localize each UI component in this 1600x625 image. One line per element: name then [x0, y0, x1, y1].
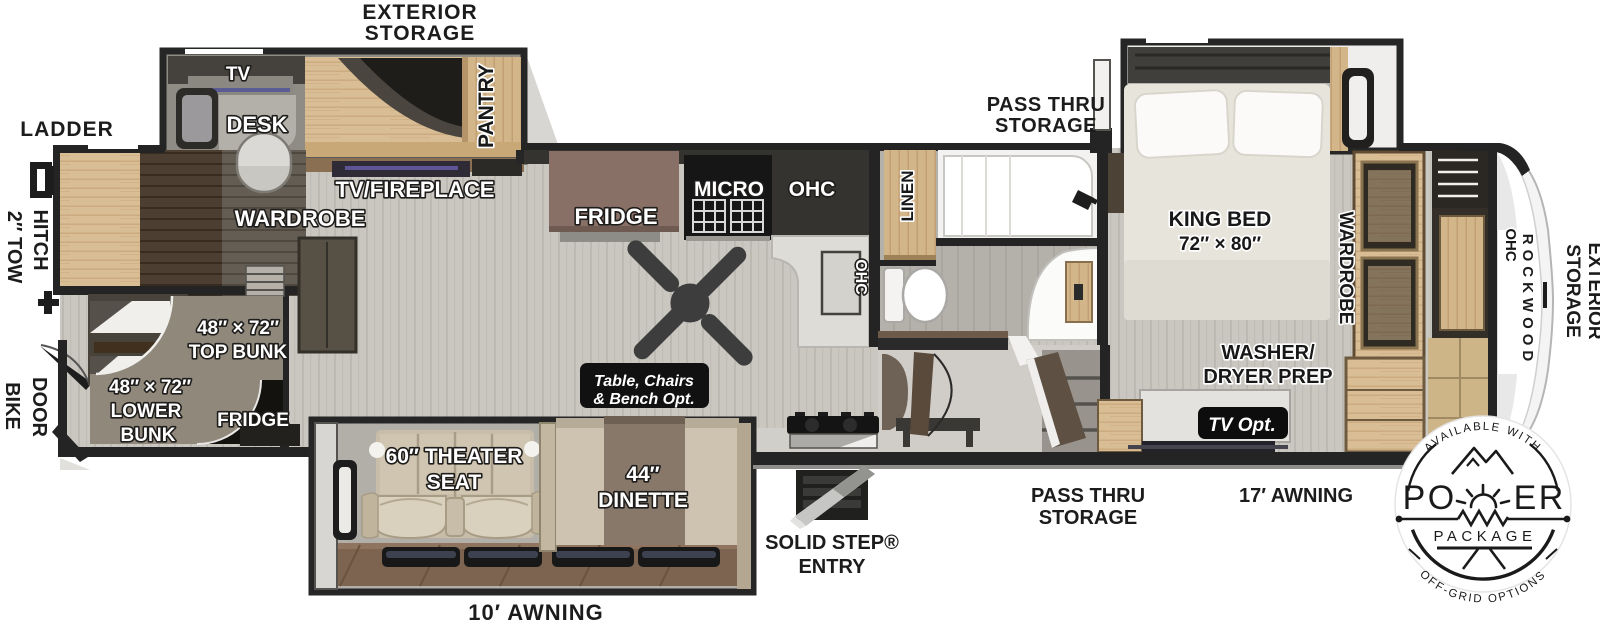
svg-text:LADDER: LADDER: [20, 118, 114, 141]
svg-text:DESK: DESK: [226, 112, 287, 137]
svg-text:72″ × 80″: 72″ × 80″: [1179, 234, 1261, 255]
svg-text:PANTRY: PANTRY: [475, 64, 498, 148]
svg-text:HITCH: HITCH: [29, 209, 51, 270]
svg-text:WARDROBE: WARDROBE: [235, 206, 366, 231]
svg-text:DRYER PREP: DRYER PREP: [1203, 366, 1332, 388]
svg-text:LOWER: LOWER: [111, 401, 182, 422]
svg-text:PASS THRU: PASS THRU: [987, 94, 1106, 116]
svg-text:44″: 44″: [626, 463, 659, 486]
svg-text:Table, Chairs: Table, Chairs: [594, 373, 694, 390]
svg-text:TV Opt.: TV Opt.: [1208, 415, 1276, 436]
svg-text:WASHER/: WASHER/: [1221, 342, 1315, 364]
svg-text:60″ THEATER: 60″ THEATER: [386, 445, 523, 468]
svg-text:E: E: [1514, 479, 1537, 517]
svg-text:DOOR: DOOR: [28, 377, 50, 438]
svg-text:STORAGE: STORAGE: [1039, 507, 1138, 529]
svg-text:BIKE: BIKE: [1, 382, 23, 430]
svg-text:STORAGE: STORAGE: [995, 115, 1097, 137]
svg-text:FRIDGE: FRIDGE: [217, 410, 289, 431]
svg-text:STORAGE: STORAGE: [1562, 244, 1583, 338]
svg-text:DINETTE: DINETTE: [598, 489, 688, 512]
svg-text:BUNK: BUNK: [121, 425, 176, 446]
svg-text:SEAT: SEAT: [427, 471, 482, 494]
svg-text:OHC: OHC: [852, 259, 869, 295]
svg-text:TV/FIREPLACE: TV/FIREPLACE: [336, 177, 495, 202]
svg-text:48″ × 72″: 48″ × 72″: [197, 318, 279, 339]
svg-text:48″ × 72″: 48″ × 72″: [109, 377, 191, 398]
svg-text:R: R: [1539, 479, 1564, 517]
svg-text:MICRO: MICRO: [694, 178, 764, 201]
svg-text:EXTERIOR: EXTERIOR: [362, 1, 477, 24]
svg-text:LINEN: LINEN: [898, 171, 917, 222]
svg-text:SOLID STEP®: SOLID STEP®: [765, 532, 899, 554]
svg-text:TOP BUNK: TOP BUNK: [189, 342, 288, 363]
svg-text:O: O: [1428, 479, 1454, 517]
svg-text:P: P: [1403, 479, 1426, 517]
svg-text:ROCKWOOD: ROCKWOOD: [1519, 234, 1536, 367]
svg-text:ENTRY: ENTRY: [798, 556, 866, 578]
svg-text:OHC: OHC: [1502, 228, 1519, 262]
svg-text:PACKAGE: PACKAGE: [1434, 528, 1537, 545]
svg-text:KING BED: KING BED: [1169, 208, 1272, 231]
svg-text:PASS THRU: PASS THRU: [1031, 485, 1145, 507]
svg-text:WARDROBE: WARDROBE: [1335, 212, 1356, 325]
svg-text:& Bench Opt.: & Bench Opt.: [593, 391, 694, 408]
svg-text:2″ TOW: 2″ TOW: [3, 211, 25, 284]
svg-text:TV: TV: [226, 64, 251, 85]
svg-text:EXTERIOR: EXTERIOR: [1584, 242, 1600, 339]
svg-text:10′ AWNING: 10′ AWNING: [468, 600, 603, 625]
svg-text:17′ AWNING: 17′ AWNING: [1239, 485, 1353, 507]
svg-text:OHC: OHC: [789, 178, 836, 201]
svg-text:FRIDGE: FRIDGE: [574, 204, 657, 229]
svg-text:STORAGE: STORAGE: [365, 22, 475, 45]
